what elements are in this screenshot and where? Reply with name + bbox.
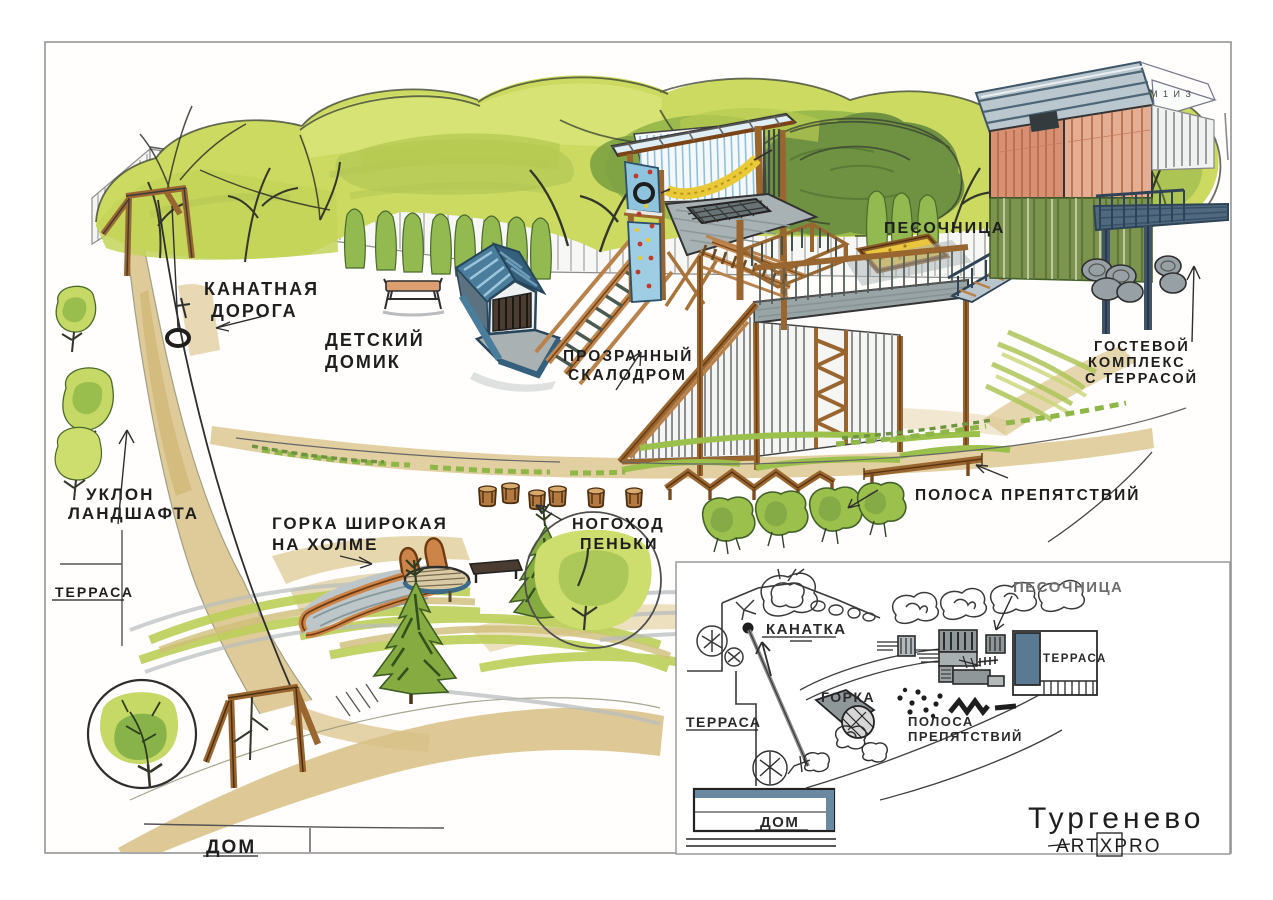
svg-text:ПЕНЬКИ: ПЕНЬКИ: [580, 536, 659, 553]
svg-text:ПРОЗРАЧНЫЙ: ПРОЗРАЧНЫЙ: [563, 347, 693, 365]
svg-text:КАНАТКА: КАНАТКА: [766, 621, 847, 638]
svg-text:ПОЛОСА: ПОЛОСА: [908, 714, 974, 729]
svg-text:ДОМ: ДОМ: [760, 814, 799, 831]
svg-text:НОГОХОД: НОГОХОД: [572, 516, 665, 533]
svg-text:ДЕТСКИЙ: ДЕТСКИЙ: [325, 329, 425, 350]
svg-text:КОМПЛЕКС: КОМПЛЕКС: [1088, 355, 1186, 371]
svg-text:ПОЛОСА ПРЕПЯТСТВИЙ: ПОЛОСА ПРЕПЯТСТВИЙ: [915, 486, 1140, 504]
svg-text:ПЕСОЧНИЦА: ПЕСОЧНИЦА: [1013, 579, 1123, 596]
svg-text:С ТЕРРАСОЙ: С ТЕРРАСОЙ: [1085, 369, 1198, 387]
svg-text:ДОМ: ДОМ: [206, 837, 256, 858]
svg-text:ГОРКА ШИРОКАЯ: ГОРКА ШИРОКАЯ: [272, 514, 448, 533]
svg-text:М 1 И З: М 1 И З: [1150, 89, 1192, 99]
svg-text:ЛАНДШАФТА: ЛАНДШАФТА: [68, 504, 199, 523]
svg-text:ТЕРРАСА: ТЕРРАСА: [55, 584, 134, 600]
svg-text:ТЕРРАСА: ТЕРРАСА: [1043, 653, 1107, 665]
svg-text:КАНАТНАЯ: КАНАТНАЯ: [204, 279, 319, 299]
svg-text:ARTXPRO: ARTXPRO: [1056, 836, 1162, 857]
svg-text:Тургенево: Тургенево: [1028, 802, 1205, 835]
svg-text:СКАЛОДРОМ: СКАЛОДРОМ: [568, 367, 687, 384]
svg-text:ПЕСОЧНИЦА: ПЕСОЧНИЦА: [884, 220, 1005, 237]
svg-text:ГОСТЕВОЙ: ГОСТЕВОЙ: [1094, 337, 1190, 355]
svg-text:НА ХОЛМЕ: НА ХОЛМЕ: [272, 535, 378, 554]
svg-text:ГОРКА: ГОРКА: [821, 689, 875, 705]
svg-text:ТЕРРАСА: ТЕРРАСА: [686, 714, 761, 730]
svg-text:ПРЕПЯТСТВИЙ: ПРЕПЯТСТВИЙ: [908, 729, 1023, 744]
svg-text:ДОМИК: ДОМИК: [325, 352, 401, 372]
